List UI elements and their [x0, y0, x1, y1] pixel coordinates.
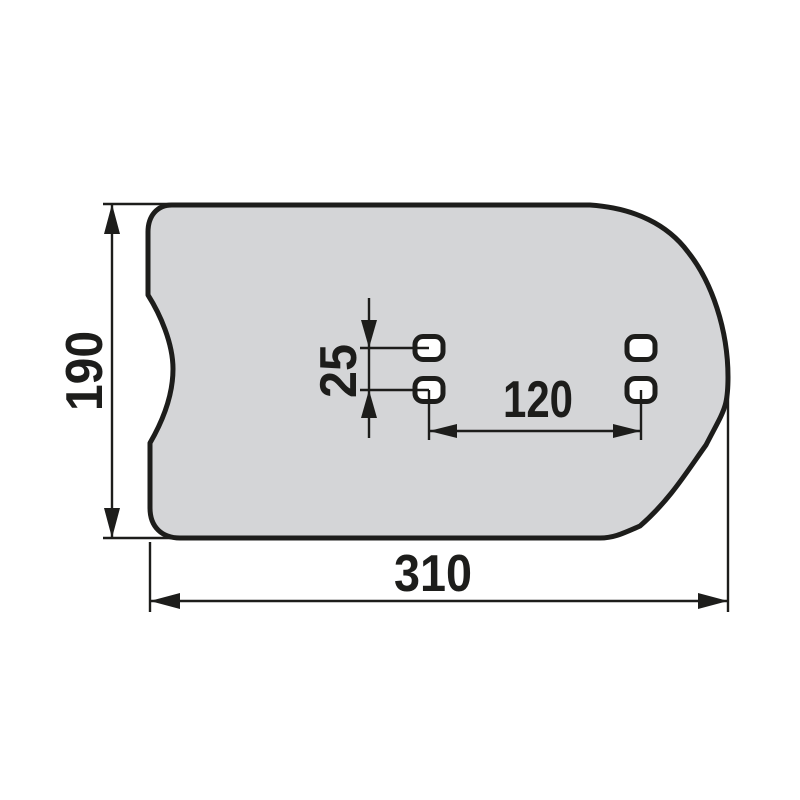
dimension-label-hole-pitch-vertical: 25	[310, 344, 368, 398]
part	[148, 205, 728, 538]
dimension-label-width: 310	[394, 545, 472, 603]
technical-drawing: 190 310 120 25	[0, 0, 800, 800]
arrowhead-up-icon	[104, 204, 120, 234]
arrowhead-down-icon	[104, 508, 120, 538]
bolt-hole-top-right	[627, 337, 655, 360]
dimension-label-height: 190	[56, 331, 114, 411]
dimension-label-hole-pitch-horizontal: 120	[503, 371, 573, 429]
arrowhead-left-icon	[150, 593, 180, 609]
drawing-svg: 190 310 120 25	[0, 0, 800, 800]
arrowhead-right-icon	[698, 593, 728, 609]
part-outline	[148, 205, 728, 538]
